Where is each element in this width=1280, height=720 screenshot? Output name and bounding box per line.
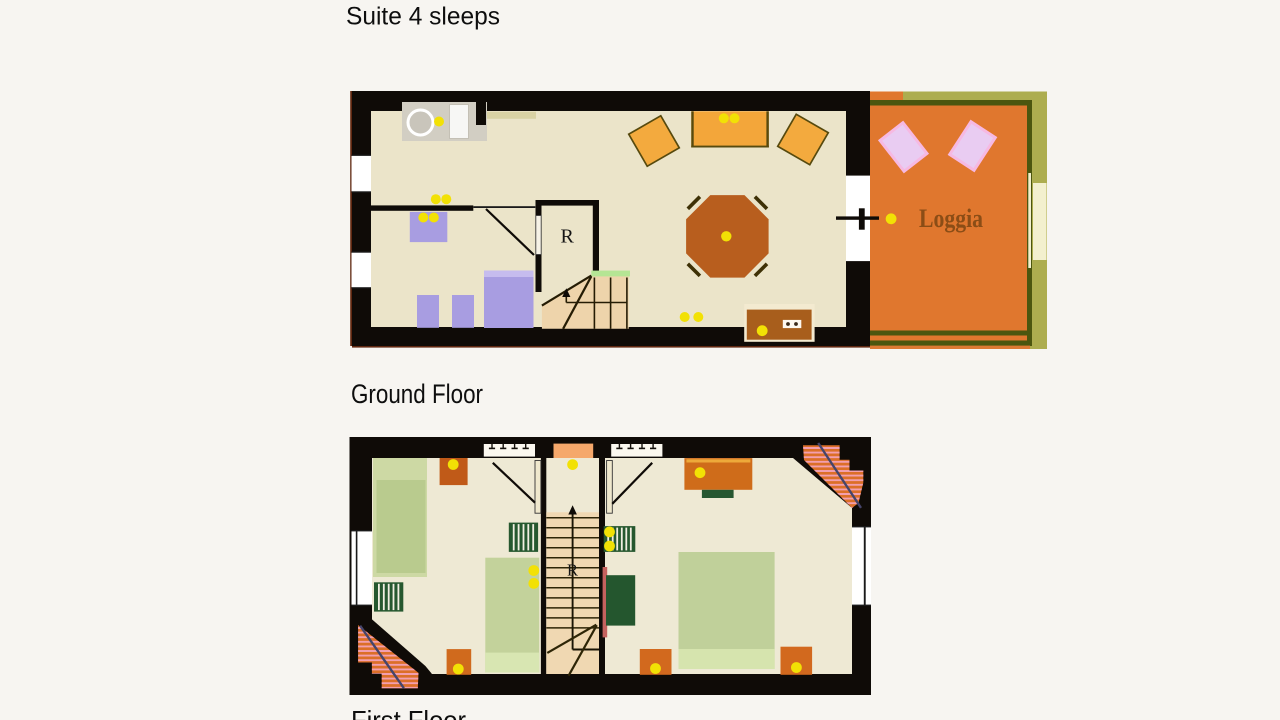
svg-text:R: R <box>561 226 575 248</box>
svg-text:First Floor: First Floor <box>351 706 466 720</box>
svg-text:R: R <box>567 561 578 580</box>
svg-text:Ground Floor: Ground Floor <box>351 379 483 409</box>
svg-text:Loggia: Loggia <box>919 204 983 233</box>
svg-text:Suite 4 sleeps: Suite 4 sleeps <box>346 3 500 31</box>
